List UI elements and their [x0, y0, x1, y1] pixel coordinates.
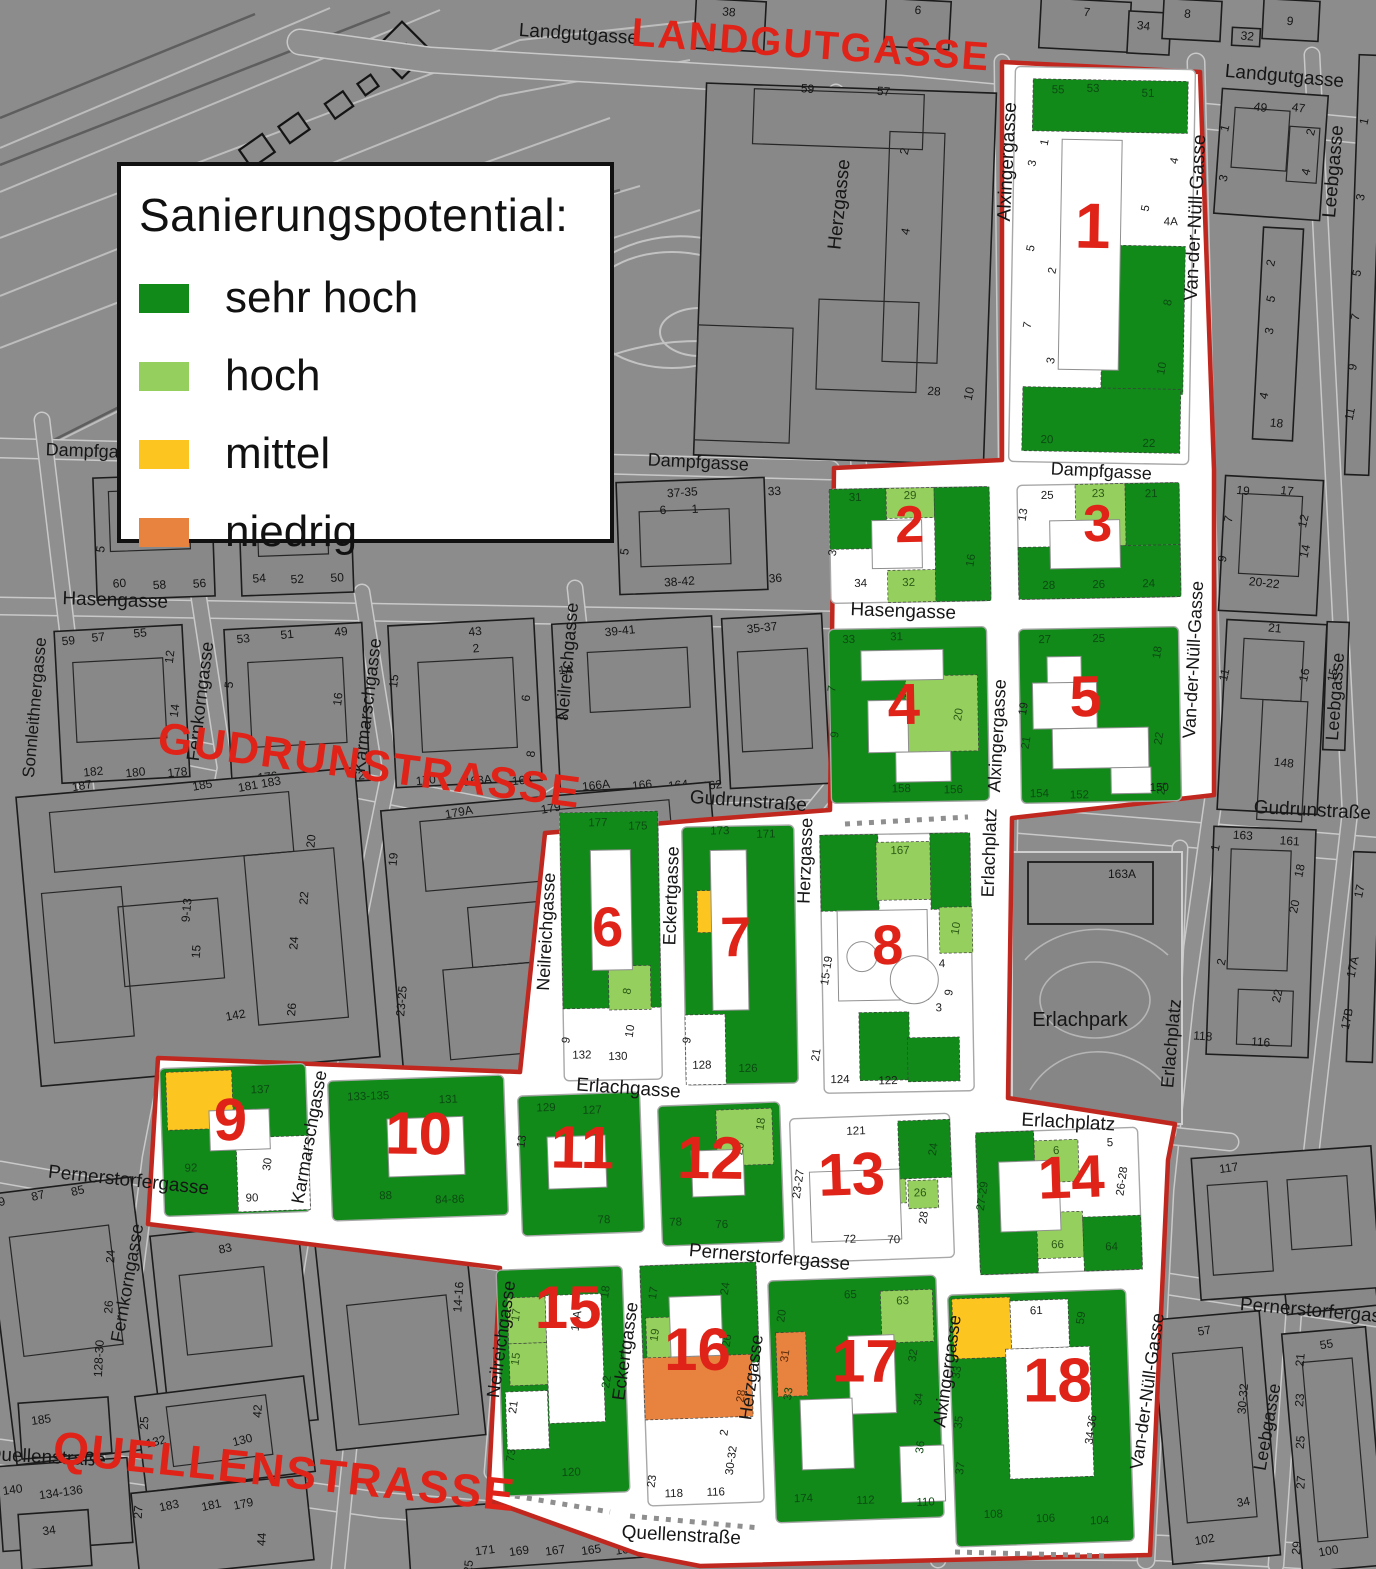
- parcel-number: 167: [890, 845, 909, 857]
- legend-item-mittel: mittel: [139, 432, 610, 476]
- parcel-number: 26: [1092, 579, 1105, 591]
- gray-city-block: 187185181 18320229-13241514226: [15, 754, 380, 1086]
- gray-block-outline: [694, 83, 997, 465]
- city-block-18: 615933353734-3610810610418: [948, 1289, 1135, 1547]
- house-number: 44: [254, 1532, 269, 1547]
- house-number: 117: [1218, 1160, 1239, 1177]
- parcel-number: 22: [1142, 438, 1155, 450]
- parcel-hoch: [608, 965, 651, 1010]
- house-number: 163A: [1108, 867, 1136, 881]
- parcel-number: 24: [927, 1142, 941, 1157]
- parcel-number: 124: [830, 1074, 850, 1086]
- parcel-number: 122: [878, 1075, 897, 1087]
- parcel-number: 20: [775, 1309, 789, 1323]
- city-block-17: 656331203332343617411211017: [768, 1275, 946, 1523]
- parcel-number: 158: [892, 783, 911, 795]
- parcel-number: 21: [1020, 736, 1034, 751]
- parcel-number: 59: [1075, 1311, 1089, 1325]
- parcel-number: 33: [782, 1387, 796, 1401]
- block-number-15: 15: [535, 1274, 602, 1341]
- parcel-number: 20: [952, 707, 966, 722]
- house-number: 6: [659, 503, 667, 517]
- house-number: 128-30: [91, 1339, 107, 1377]
- parcel-number: 13: [1017, 508, 1031, 523]
- house-number: 59: [61, 633, 76, 648]
- street-label-erlachplatz: Erlachplatz: [977, 808, 1000, 898]
- city-block-5: 272518192122241541521505: [1016, 627, 1182, 804]
- legend-rows: sehr hochhochmittelniedrig: [121, 276, 610, 554]
- block-number-11: 11: [550, 1113, 615, 1181]
- house-number: 25: [137, 1416, 152, 1430]
- parcel-number: 30: [261, 1157, 275, 1171]
- house-number: 38-42: [664, 573, 696, 589]
- gray-block-outline: [16, 768, 380, 1087]
- parcel-white: [505, 1391, 549, 1450]
- house-number: 30-32: [1234, 1383, 1251, 1415]
- parcel-number: 35: [952, 1415, 966, 1429]
- parcel-number: 76: [715, 1219, 728, 1231]
- parcel-number: 32: [907, 1348, 921, 1362]
- legend-item-hoch: hoch: [139, 354, 610, 398]
- city-block-8: 1671015-19493211241228: [806, 833, 975, 1094]
- house-number: 167: [544, 1542, 566, 1559]
- parcel-number: 10: [1155, 361, 1169, 376]
- house-number: 185: [30, 1411, 52, 1428]
- house-number: 34: [1236, 1494, 1252, 1510]
- gray-block-outline: [1206, 826, 1316, 1057]
- house-number: 49: [1253, 99, 1268, 115]
- parcel-number: 13: [515, 1134, 529, 1148]
- gray-city-block: 32: [1232, 27, 1261, 46]
- block-number-7: 7: [720, 905, 752, 969]
- house-number: 29: [1289, 1540, 1304, 1555]
- building-footprint: [800, 1398, 854, 1470]
- gray-city-block: 117: [1191, 1146, 1376, 1300]
- legend: Sanierungspotential: sehr hochhochmittel…: [117, 162, 614, 543]
- legend-item-label: hoch: [225, 354, 320, 398]
- parcel-number: 152: [1070, 789, 1089, 801]
- block-number-1: 1: [1074, 190, 1111, 263]
- house-number: 9-13: [179, 897, 195, 922]
- parcel-number: 26: [914, 1187, 927, 1199]
- parcel-number: 17: [647, 1286, 661, 1300]
- parcel-white: [685, 1014, 726, 1085]
- parcel-number: 175: [628, 820, 647, 832]
- street-label-eckertgasse: Eckertgasse: [659, 846, 682, 946]
- map-stage: 6165386734832949471234253418135791159572…: [0, 0, 1376, 1569]
- parcel-number: 53: [1087, 83, 1100, 95]
- parcel-number: 154: [1030, 788, 1050, 800]
- parcel-number: 108: [984, 1508, 1004, 1521]
- parcel-number: 21: [810, 1048, 824, 1063]
- house-number: 51: [280, 627, 295, 642]
- gray-city-block: 35-37: [722, 613, 831, 788]
- gray-city-block: 191771291420-22: [1212, 475, 1323, 615]
- legend-item-label: niedrig: [225, 510, 357, 554]
- parcel-number: 120: [561, 1466, 581, 1479]
- city-block-6: 17717589101321306: [556, 811, 662, 1081]
- house-number: 42: [250, 1404, 265, 1418]
- street-label-hasengasse: Hasengasse: [62, 588, 168, 613]
- block-number-10: 10: [385, 1099, 453, 1167]
- parcel-number: 128: [692, 1060, 711, 1072]
- parcel-number: 84-86: [435, 1193, 465, 1206]
- parcel-number: 10: [624, 1024, 638, 1039]
- parcel-number: 18: [754, 1117, 768, 1131]
- gray-block-outline: [1217, 620, 1327, 815]
- parcel-number: 173: [710, 825, 729, 837]
- block-number-18: 18: [1023, 1346, 1092, 1415]
- parcel-number: 63: [896, 1295, 909, 1307]
- parcel-number: 25: [1092, 633, 1105, 645]
- house-number: 55: [1319, 1336, 1335, 1352]
- parcel-sehr_hoch: [930, 833, 971, 910]
- house-number: 57: [1196, 1323, 1212, 1339]
- house-number: 21: [1293, 1352, 1308, 1367]
- parcel-number: 31: [890, 631, 903, 643]
- house-number: 116: [1251, 1034, 1271, 1049]
- gray-block-outline: [1162, 0, 1222, 41]
- parcel-number: 21: [507, 1400, 521, 1414]
- parcel-niedrig: [776, 1332, 808, 1397]
- legend-color-chip-sehr_hoch: [139, 284, 189, 313]
- parcel-number: 133-135: [347, 1090, 390, 1103]
- parcel-sehr_hoch: [859, 1012, 910, 1081]
- block-number-2: 2: [895, 496, 925, 554]
- house-number: 15: [386, 673, 402, 688]
- parcel-sehr_hoch: [934, 487, 991, 602]
- parcel-number: 126: [738, 1063, 757, 1075]
- house-number: 22: [296, 890, 311, 905]
- block-number-5: 5: [1069, 664, 1102, 730]
- city-block-11: 129127137811: [514, 1092, 645, 1236]
- parcel-number: 177: [588, 817, 607, 829]
- house-number: 56: [192, 576, 207, 591]
- house-number: 47: [1291, 100, 1306, 116]
- house-number: 26: [284, 1002, 299, 1017]
- parcel-number: 112: [856, 1494, 875, 1507]
- parcel-number: 22: [1153, 731, 1167, 746]
- house-number: 34: [41, 1522, 56, 1538]
- house-number: 57: [91, 629, 106, 644]
- parcel-number: 88: [379, 1190, 392, 1202]
- parcel-number: 55: [1052, 84, 1065, 96]
- gray-block-outline: [18, 1510, 92, 1569]
- house-number: 36: [768, 571, 783, 586]
- parcel-number: 106: [1036, 1513, 1056, 1526]
- gray-city-block: 9: [1262, 0, 1320, 41]
- parcel-number: 51: [1142, 88, 1155, 100]
- block-number-17: 17: [832, 1328, 899, 1395]
- parcel-number: 150: [1150, 782, 1169, 794]
- legend-item-sehr_hoch: sehr hoch: [139, 276, 610, 320]
- parcel-number: 28: [1042, 580, 1055, 592]
- parcel-number: 19: [648, 1328, 662, 1342]
- house-number: 23: [1292, 1393, 1307, 1408]
- legend-item-label: sehr hoch: [225, 276, 418, 320]
- gray-block-outline: [722, 613, 831, 788]
- house-number: 169: [508, 1542, 530, 1559]
- parcel-number: 92: [184, 1162, 197, 1174]
- city-block-3: 251323212826243: [1016, 483, 1181, 600]
- street-label-herzgasse: Herzgasse: [794, 817, 817, 904]
- legend-item-niedrig: niedrig: [139, 510, 610, 554]
- parcel-number: 37: [954, 1461, 968, 1475]
- parcel-number: 34: [912, 1392, 926, 1407]
- house-number: 60: [112, 576, 127, 591]
- house-number: 50: [330, 570, 345, 585]
- house-number: 21: [1267, 620, 1282, 635]
- house-number: 178: [167, 764, 189, 780]
- parcel-number: 3: [935, 1002, 942, 1014]
- house-number: 118: [1193, 1028, 1213, 1043]
- house-number: 16: [330, 691, 346, 706]
- house-number: 54: [252, 571, 267, 586]
- street-label-hasengasse: Hasengasse: [850, 599, 956, 624]
- house-number: 25: [1293, 1435, 1308, 1450]
- house-number: 15: [189, 944, 204, 959]
- gray-city-block: 8: [1162, 0, 1222, 41]
- city-block-2: 312933432162: [826, 487, 991, 604]
- house-number: 14-16: [450, 1281, 466, 1313]
- parcel-number: 78: [597, 1214, 610, 1226]
- parcel-number: 171: [756, 828, 775, 840]
- parcel-number: 10: [950, 921, 964, 936]
- house-number: 23-25: [393, 985, 410, 1017]
- gray-city-block: 49471234: [1211, 88, 1328, 220]
- house-number: 1: [691, 502, 699, 516]
- city-block-4: 333179201581564: [825, 627, 989, 804]
- city-block-7: 17317112612897: [677, 824, 798, 1085]
- parcel-number: 72: [843, 1234, 856, 1246]
- parcel-number: 15: [509, 1352, 523, 1366]
- parcel-number: 24: [1142, 578, 1156, 590]
- house-number: 58: [152, 577, 167, 592]
- gray-city-block: 7: [1039, 0, 1131, 52]
- house-number: 161: [1279, 833, 1300, 848]
- parcel-number: 31: [779, 1349, 793, 1363]
- city-block-14: 6526-2827-29666414: [972, 1127, 1142, 1275]
- parcel-number: 23: [646, 1474, 660, 1488]
- parcel-number: 27: [1038, 634, 1051, 646]
- parcel-number: 34: [854, 578, 868, 590]
- house-number: 163: [1232, 828, 1253, 843]
- house-number: 19: [1236, 483, 1251, 498]
- house-number: 148: [1273, 755, 1295, 771]
- parcel-number: 130: [608, 1051, 627, 1063]
- parcel-number: 121: [846, 1125, 866, 1138]
- block-number-6: 6: [592, 895, 624, 959]
- house-number: 32: [1240, 28, 1255, 43]
- parcel-number: 5: [1107, 1137, 1114, 1149]
- block-number-16: 16: [664, 1316, 731, 1383]
- house-number: 37-35: [667, 484, 699, 500]
- block-number-9: 9: [213, 1086, 248, 1154]
- house-number: 18: [1269, 415, 1284, 430]
- parcel-number: 4A: [1164, 216, 1179, 228]
- house-number: 59: [800, 81, 815, 96]
- legend-color-chip-hoch: [139, 362, 189, 391]
- gray-city-block: 5957242810: [694, 78, 997, 465]
- house-number: 12: [162, 649, 178, 664]
- parcel-number: 156: [944, 784, 963, 796]
- parcel-number: 116: [706, 1486, 725, 1499]
- parcel-number: 31: [849, 492, 862, 504]
- house-number: 180: [125, 764, 147, 780]
- parcel-number: 32: [902, 577, 915, 589]
- parcel-number: 61: [1030, 1305, 1043, 1317]
- house-number: 53: [236, 631, 251, 646]
- block-number-4: 4: [887, 672, 920, 738]
- street-label-erlachpark: Erlachpark: [1032, 1009, 1129, 1031]
- house-number: 20: [303, 834, 318, 849]
- parcel-number: 4: [939, 958, 946, 970]
- house-number: 24: [286, 935, 301, 950]
- parcel-number: 104: [1090, 1515, 1110, 1528]
- house-number: 52: [290, 572, 305, 587]
- parcel-number: 28: [917, 1211, 931, 1225]
- parcel-number: 90: [245, 1192, 258, 1204]
- city-block-13: 12123-27242628727013: [788, 1113, 954, 1263]
- erlachpark: 163A: [1012, 852, 1182, 1124]
- legend-item-label: mittel: [225, 432, 330, 476]
- house-number: 34: [1136, 18, 1151, 33]
- parcel-number: 65: [844, 1289, 857, 1301]
- house-number: 43: [468, 624, 483, 639]
- city-block-10: 133-1351318884-8610: [328, 1075, 509, 1221]
- parcel-number: 24: [719, 1281, 733, 1296]
- house-number: 24: [103, 1249, 118, 1263]
- parcel-number: 18: [1151, 645, 1165, 660]
- building-footprint: [896, 751, 952, 782]
- parcel-number: 21: [1145, 488, 1158, 500]
- house-number: 55: [133, 625, 148, 640]
- parcel-number: 110: [916, 1496, 935, 1509]
- parcel-number: 66: [1051, 1239, 1064, 1251]
- house-number: 57: [876, 84, 891, 99]
- gray-city-block: 211116148: [1209, 618, 1327, 823]
- legend-color-chip-niedrig: [139, 518, 189, 547]
- parcel-number: 33: [842, 634, 855, 646]
- parcel-number: 137: [250, 1084, 270, 1097]
- parcel-number: 20: [1040, 434, 1053, 446]
- block-number-12: 12: [677, 1124, 745, 1192]
- parcel-sehr_hoch: [907, 1037, 960, 1082]
- building-footprint: [1111, 767, 1151, 794]
- city-block-1: 555351135273454A81020221: [1009, 66, 1196, 464]
- parcel-number: 19: [1017, 702, 1031, 717]
- parcel-number: 64: [1105, 1241, 1119, 1253]
- block-number-14: 14: [1037, 1142, 1107, 1211]
- house-number: 140: [2, 1481, 24, 1498]
- house-number: 33: [767, 484, 782, 499]
- gray-block-outline: [1214, 88, 1328, 220]
- parcel-number: 132: [572, 1049, 591, 1061]
- parcel-number: 70: [887, 1234, 900, 1246]
- block-number-8: 8: [872, 913, 904, 977]
- parcel-number: 78: [669, 1216, 682, 1228]
- parcel-number: 36: [914, 1440, 928, 1454]
- parcel-number: 118: [664, 1488, 683, 1501]
- legend-title: Sanierungspotential:: [139, 188, 610, 242]
- house-number: 27: [1293, 1475, 1308, 1490]
- gray-city-block: 37-356133538-4236: [615, 477, 785, 595]
- parcel-sehr_hoch: [898, 1119, 952, 1179]
- block-number-13: 13: [817, 1140, 886, 1209]
- house-number: 165: [580, 1541, 602, 1558]
- parcel-number: 73: [505, 1448, 519, 1462]
- house-number: 19: [386, 852, 401, 867]
- parcel-number: 16: [964, 553, 978, 568]
- parcel-sehr_hoch: [820, 834, 879, 911]
- parcel-number: 25: [1041, 490, 1054, 502]
- block-number-3: 3: [1083, 495, 1113, 553]
- house-number: 28: [927, 384, 942, 399]
- building-footprint: [1052, 727, 1149, 769]
- house-number: 27: [131, 1505, 146, 1520]
- legend-color-chip-mittel: [139, 440, 189, 469]
- city-block-12: 1820787612: [658, 1102, 785, 1246]
- parcel-number: 174: [794, 1493, 814, 1506]
- house-number: 171: [474, 1542, 496, 1559]
- gray-city-block: 34: [18, 1510, 92, 1569]
- house-number: 17: [1280, 483, 1295, 498]
- house-number: 49: [334, 624, 349, 639]
